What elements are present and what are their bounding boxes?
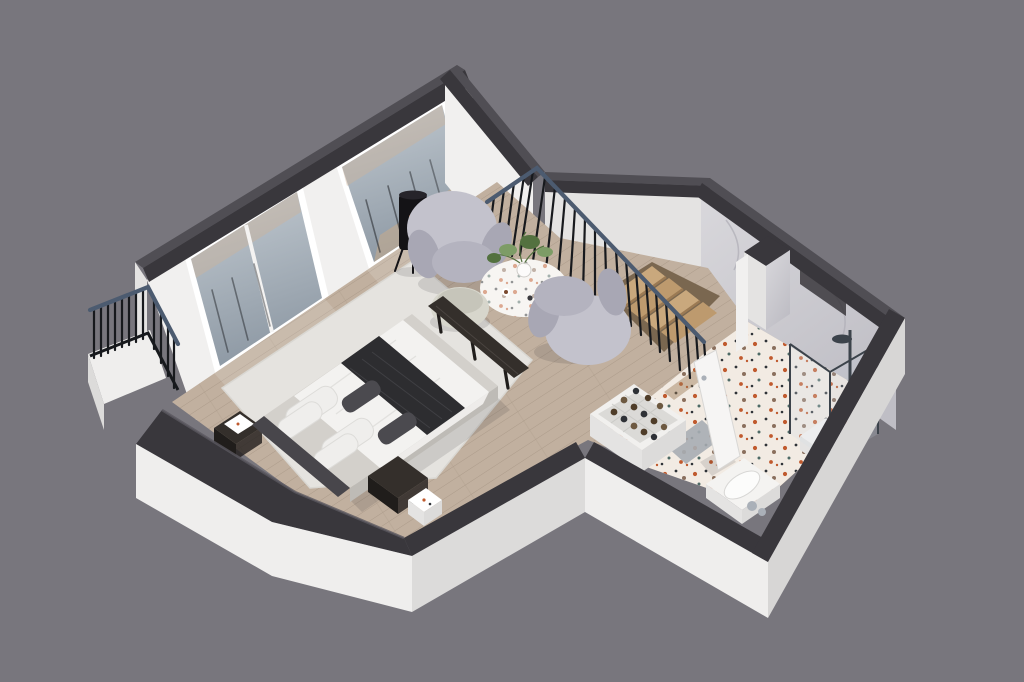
lamp-top [399,191,427,200]
isometric-scene [0,0,1024,682]
glass-vase [517,263,531,277]
marble-column [744,236,790,330]
faucet [747,501,757,511]
rain-shower-head [832,335,852,344]
small-dish [527,295,532,300]
white-partition [736,254,748,352]
faucet [758,508,766,516]
floorplan-render [0,0,1024,682]
door-handle [701,375,706,380]
